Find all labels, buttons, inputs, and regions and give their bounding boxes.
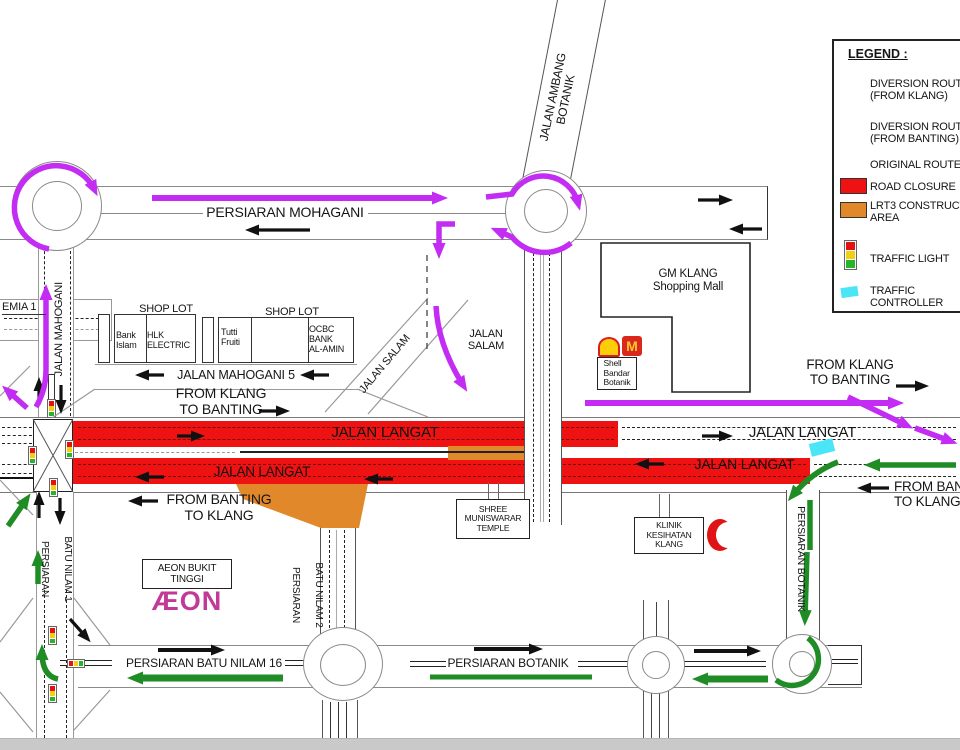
klinik-kesihatan-klang: KLINIK KESIHATAN KLANG: [634, 517, 704, 554]
lane-line: [338, 702, 339, 742]
legend-item-road-closure: ROAD CLOSURE: [870, 181, 960, 193]
label-jalan-langat-1: JALAN LANGAT: [318, 425, 452, 442]
traffic-diversion-map: SHREE MUNISWARAR TEMPLE KLINIK KESIHATAN…: [0, 0, 960, 750]
median-barrier: [240, 451, 530, 453]
legend: LEGEND : DIVERSION ROUTE (FROM KLANG) DI…: [832, 39, 960, 313]
label-jalan-salam-diagonal: JALAN SALAM: [353, 328, 416, 400]
mcdonalds-icon: M: [622, 336, 642, 356]
shree-muniswarar-temple: SHREE MUNISWARAR TEMPLE: [456, 499, 530, 539]
shell-station-label-box: Shell Bandar Botanik: [597, 357, 637, 390]
label-jalan-mahogani-5: JALAN MAHOGANI 5: [175, 368, 297, 382]
legend-item-diversion-banting: DIVERSION ROUTE (FROM BANTING): [870, 121, 960, 146]
traffic-light-icon: [844, 240, 857, 270]
label-from-banting-right: FROM BANTING TO KLANG: [894, 479, 960, 509]
lane-marking: [2, 473, 32, 474]
access-lane: [498, 482, 499, 500]
klinik-label: KLINIK KESIHATAN KLANG: [646, 521, 691, 550]
label-batu-nilam-16: PERSIARAN BATU NILAM 16: [118, 657, 290, 670]
lane-line: [330, 702, 331, 742]
lane-line: [656, 602, 657, 640]
roundabout-island: [642, 651, 670, 679]
lane-marking: [549, 248, 550, 522]
traffic-controller-icon: [840, 286, 858, 298]
roundabout-island: [524, 189, 568, 233]
road-center-line: [100, 213, 203, 214]
lane-line: [346, 702, 347, 742]
label-ocbc: OCBC BANK AL-AMIN: [309, 324, 353, 354]
shop-divider: [251, 318, 252, 362]
median-line: [680, 661, 766, 662]
label-from-klang-right: FROM KLANG TO BANTING: [795, 357, 905, 387]
access-lane: [488, 482, 489, 500]
label-batu-nilam-2: BATU NILAM 2 PERSIARAN: [279, 540, 335, 650]
legend-item-traffic-light: TRAFFIC LIGHT: [870, 253, 960, 265]
roundabout-island: [32, 181, 82, 231]
traffic-light-icon: [28, 446, 37, 465]
aeon-bukit-tinggi-box: AEON BUKIT TINGGI: [142, 559, 232, 589]
label-jalan-langat-2: JALAN LANGAT: [740, 425, 865, 442]
map-edge-strip: [0, 738, 960, 750]
label-jalan-langat-4: JALAN LANGAT: [682, 457, 807, 473]
roundabout-island: [789, 651, 815, 677]
lane-marking: [2, 443, 32, 444]
lane-marking: [814, 476, 956, 477]
label-tutti-fruiti: Tutti Fruiti: [221, 327, 251, 347]
label-jalan-mahogani: JALAN MAHOGANI: [53, 269, 65, 389]
label-line: BATU NILAM 1: [62, 514, 73, 624]
label-jalan-salam: JALAN SALAM: [458, 328, 514, 353]
aeon-label: AEON BUKIT TINGGI: [158, 563, 217, 585]
label-from-klang-left: FROM KLANG TO BANTING: [163, 386, 279, 417]
traffic-light-icon: [65, 440, 74, 459]
traffic-light-icon: [47, 399, 56, 418]
median-line: [832, 659, 858, 660]
traffic-light-icon: [67, 659, 85, 668]
label-hlk-electric: HLK ELECTRIC: [147, 330, 197, 350]
legend-item-lrt3: LRT3 CONSTRUCTION AREA: [870, 200, 960, 225]
label-shop-lot-2: SHOP LOT: [264, 306, 320, 318]
aeon-logo: ÆON: [140, 586, 234, 617]
roundabout-island: [320, 644, 366, 686]
label-persiaran-botanik-vertical: PERSIARAN BOTANIK: [794, 500, 806, 618]
legend-title: LEGEND :: [848, 47, 960, 61]
red-crescent-icon: [707, 519, 735, 551]
shop-lot-block-2-cap: [202, 317, 214, 363]
access-lane: [669, 494, 670, 517]
lane-marking: [2, 427, 32, 428]
temple-label: SHREE MUNISWARAR TEMPLE: [465, 505, 522, 534]
shop-lot-block-1-cap: [98, 314, 110, 363]
label-gm-klang: GM KLANG Shopping Mall: [628, 268, 748, 294]
label-line: PERSIARAN: [39, 514, 50, 624]
crescent-cutout: [716, 522, 735, 548]
label-batu-nilam-1: BATU NILAM 1 PERSIARAN: [28, 514, 84, 624]
legend-item-diversion-klang: DIVERSION ROUTE (FROM KLANG): [870, 78, 960, 103]
traffic-light-icon: [48, 626, 57, 645]
median-line: [832, 663, 858, 664]
lane-marking: [70, 246, 71, 416]
lane-marking: [2, 435, 32, 436]
label-jalan-langat-3: JALAN LANGAT: [200, 464, 324, 479]
label-shop-lot-1: SHOP LOT: [138, 303, 194, 315]
access-lane: [659, 494, 660, 517]
road-center-line: [368, 213, 506, 214]
label-persiaran-mohagani: PERSIARAN MOHAGANI: [200, 205, 370, 221]
road-edge: [95, 364, 357, 365]
lane-line: [659, 692, 660, 742]
legend-item-traffic-controller: TRAFFIC CONTROLLER: [870, 285, 960, 310]
median-line: [543, 248, 544, 522]
road-stub-east: [828, 645, 862, 685]
label-line: PERSIARAN: [290, 540, 301, 650]
median-line: [680, 666, 766, 667]
traffic-light-icon: [48, 684, 57, 703]
road-stub-south: [643, 690, 669, 745]
label-bank-islam: Bank Islam: [116, 330, 146, 350]
shell-icon: [598, 337, 620, 357]
label-persiaran-botanik: PERSIARAN BOTANIK: [440, 657, 576, 670]
median-marking: [75, 452, 235, 453]
road-closure-swatch: [840, 178, 867, 194]
label-line: BATU NILAM 2: [313, 540, 324, 650]
shell-label: Shell Bandar Botanik: [604, 359, 631, 388]
median-line: [540, 248, 541, 522]
lane-marking: [814, 464, 956, 465]
traffic-light-icon: [49, 478, 58, 497]
lane-line: [651, 692, 652, 742]
label-from-banting-left: FROM BANTING TO KLANG: [160, 492, 278, 523]
lrt3-area-swatch: [840, 202, 867, 218]
lane-marking: [78, 476, 806, 477]
label-akademia: EMIA 1: [2, 301, 46, 315]
lane-marking: [344, 530, 345, 638]
median-line: [336, 530, 337, 638]
legend-item-original-route: ORIGINAL ROUTE: [870, 159, 960, 171]
mcdonalds-m: M: [626, 338, 638, 354]
lane-marking: [533, 248, 534, 522]
